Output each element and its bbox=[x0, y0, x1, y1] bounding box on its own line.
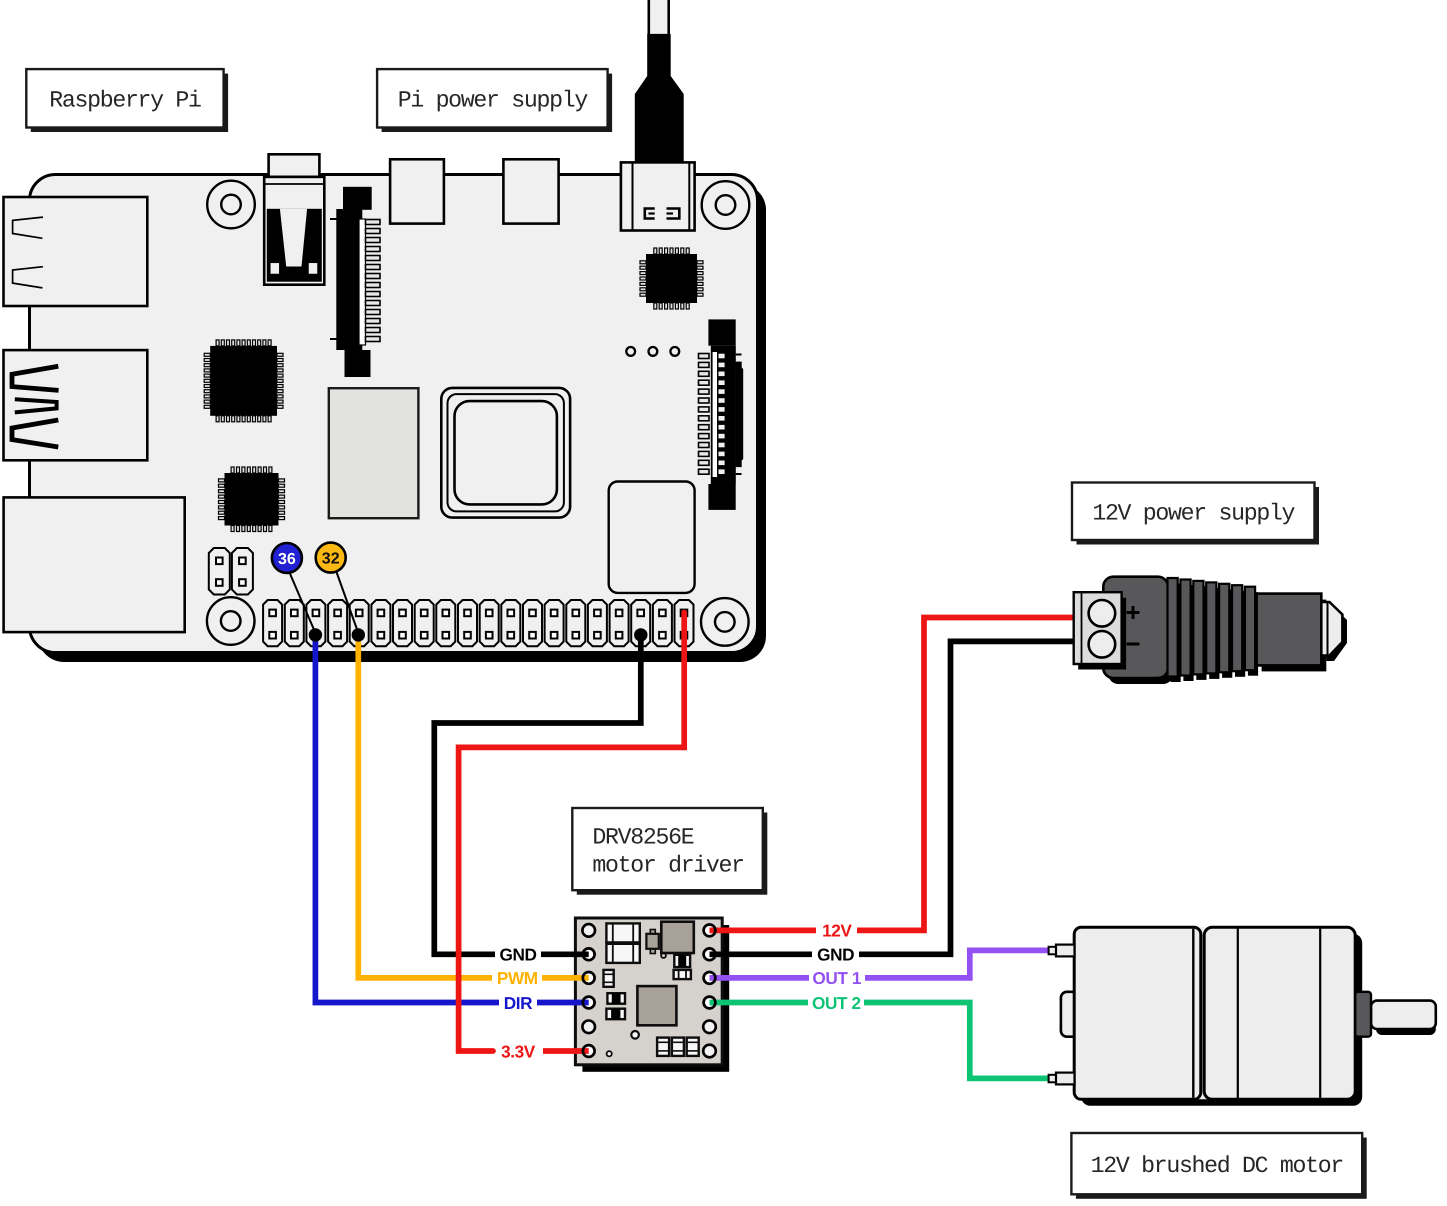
svg-text:OUT 1: OUT 1 bbox=[812, 968, 861, 988]
svg-text:DIR: DIR bbox=[504, 993, 533, 1013]
svg-text:Pi power supply: Pi power supply bbox=[398, 88, 589, 114]
svg-text:GND: GND bbox=[500, 945, 537, 965]
svg-text:12V power supply: 12V power supply bbox=[1092, 501, 1295, 527]
svg-text:PWM: PWM bbox=[497, 968, 538, 988]
svg-text:DRV8256E: DRV8256E bbox=[592, 824, 693, 850]
svg-text:motor driver: motor driver bbox=[592, 852, 743, 878]
svg-text:3.3V: 3.3V bbox=[501, 1041, 536, 1061]
svg-text:Raspberry Pi: Raspberry Pi bbox=[49, 88, 201, 114]
svg-text:36: 36 bbox=[278, 551, 296, 568]
svg-text:12V brushed DC motor: 12V brushed DC motor bbox=[1091, 1153, 1343, 1179]
svg-text:GND: GND bbox=[817, 945, 854, 965]
svg-text:32: 32 bbox=[322, 550, 340, 567]
svg-text:12V: 12V bbox=[822, 921, 852, 941]
svg-text:OUT 2: OUT 2 bbox=[812, 993, 861, 1013]
